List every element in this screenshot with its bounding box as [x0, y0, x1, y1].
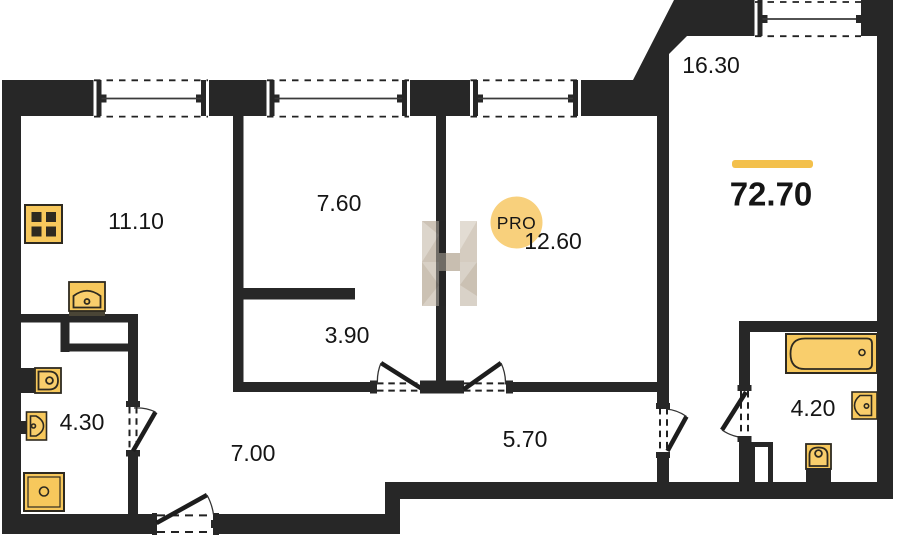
svg-text:12.60: 12.60: [524, 228, 582, 254]
svg-text:7.00: 7.00: [231, 440, 276, 466]
svg-text:7.60: 7.60: [317, 190, 362, 216]
svg-text:11.10: 11.10: [108, 208, 164, 234]
svg-text:72.70: 72.70: [730, 176, 813, 213]
svg-text:4.20: 4.20: [791, 395, 836, 421]
svg-text:16.30: 16.30: [682, 52, 740, 78]
svg-text:3.90: 3.90: [325, 322, 370, 348]
svg-text:4.30: 4.30: [60, 409, 105, 435]
svg-text:5.70: 5.70: [503, 426, 548, 452]
